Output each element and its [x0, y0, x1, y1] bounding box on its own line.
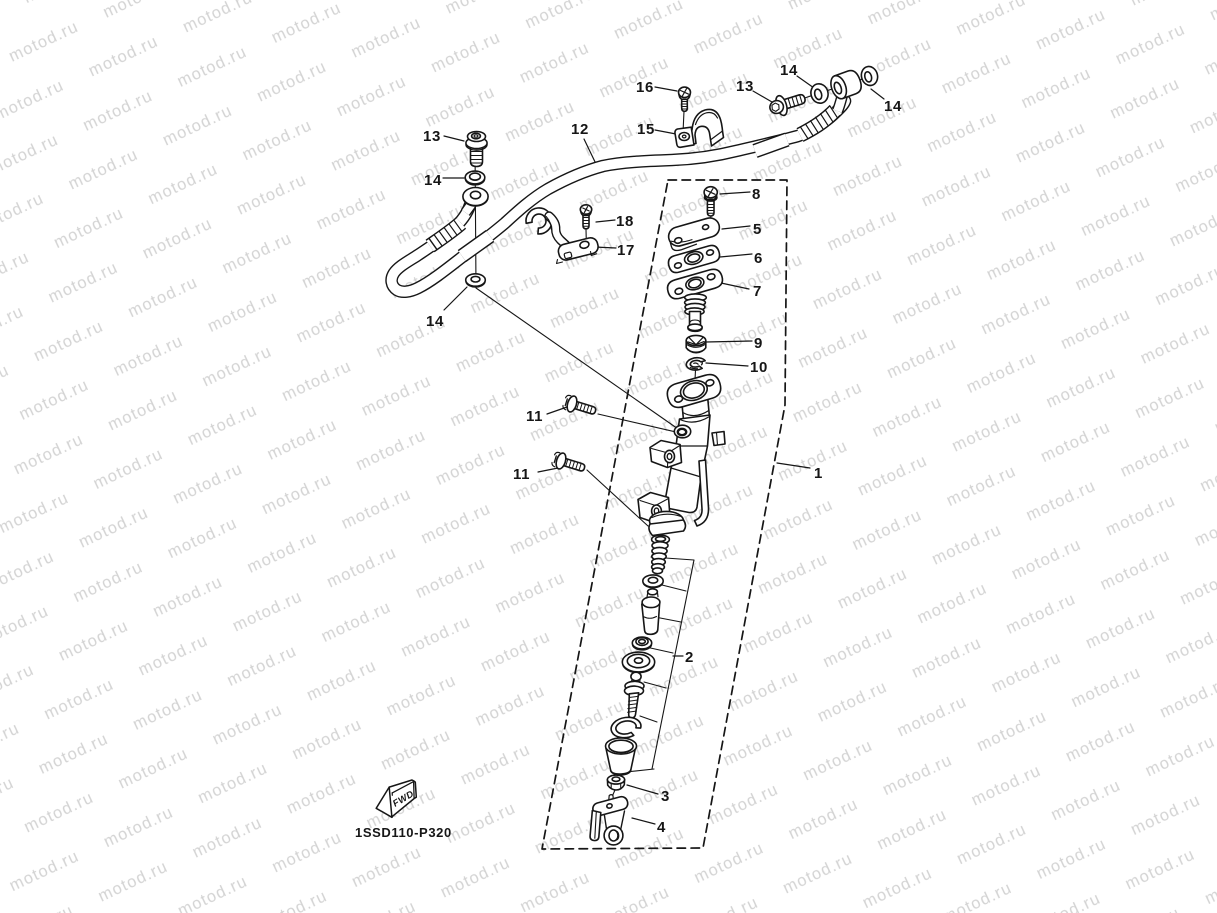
svg-text:14: 14 — [424, 172, 442, 189]
svg-text:6: 6 — [754, 250, 763, 267]
svg-text:8: 8 — [752, 186, 761, 203]
svg-text:11: 11 — [513, 466, 530, 483]
svg-text:13: 13 — [423, 128, 441, 145]
svg-text:14: 14 — [884, 98, 902, 115]
svg-text:1SSD110-P320: 1SSD110-P320 — [355, 825, 452, 840]
svg-text:14: 14 — [780, 62, 798, 79]
svg-text:2: 2 — [685, 649, 694, 666]
svg-text:14: 14 — [426, 313, 444, 330]
svg-text:18: 18 — [616, 213, 634, 230]
svg-text:7: 7 — [753, 283, 762, 300]
svg-text:3: 3 — [661, 788, 670, 805]
svg-text:4: 4 — [657, 819, 666, 836]
svg-text:15: 15 — [637, 121, 655, 138]
svg-text:5: 5 — [753, 221, 762, 238]
svg-text:13: 13 — [736, 78, 754, 95]
svg-text:16: 16 — [636, 79, 654, 96]
svg-text:1: 1 — [814, 465, 823, 482]
svg-text:11: 11 — [526, 408, 543, 425]
svg-text:12: 12 — [571, 121, 589, 138]
svg-text:17: 17 — [617, 242, 635, 259]
svg-text:9: 9 — [754, 335, 763, 352]
svg-text:10: 10 — [750, 359, 768, 376]
